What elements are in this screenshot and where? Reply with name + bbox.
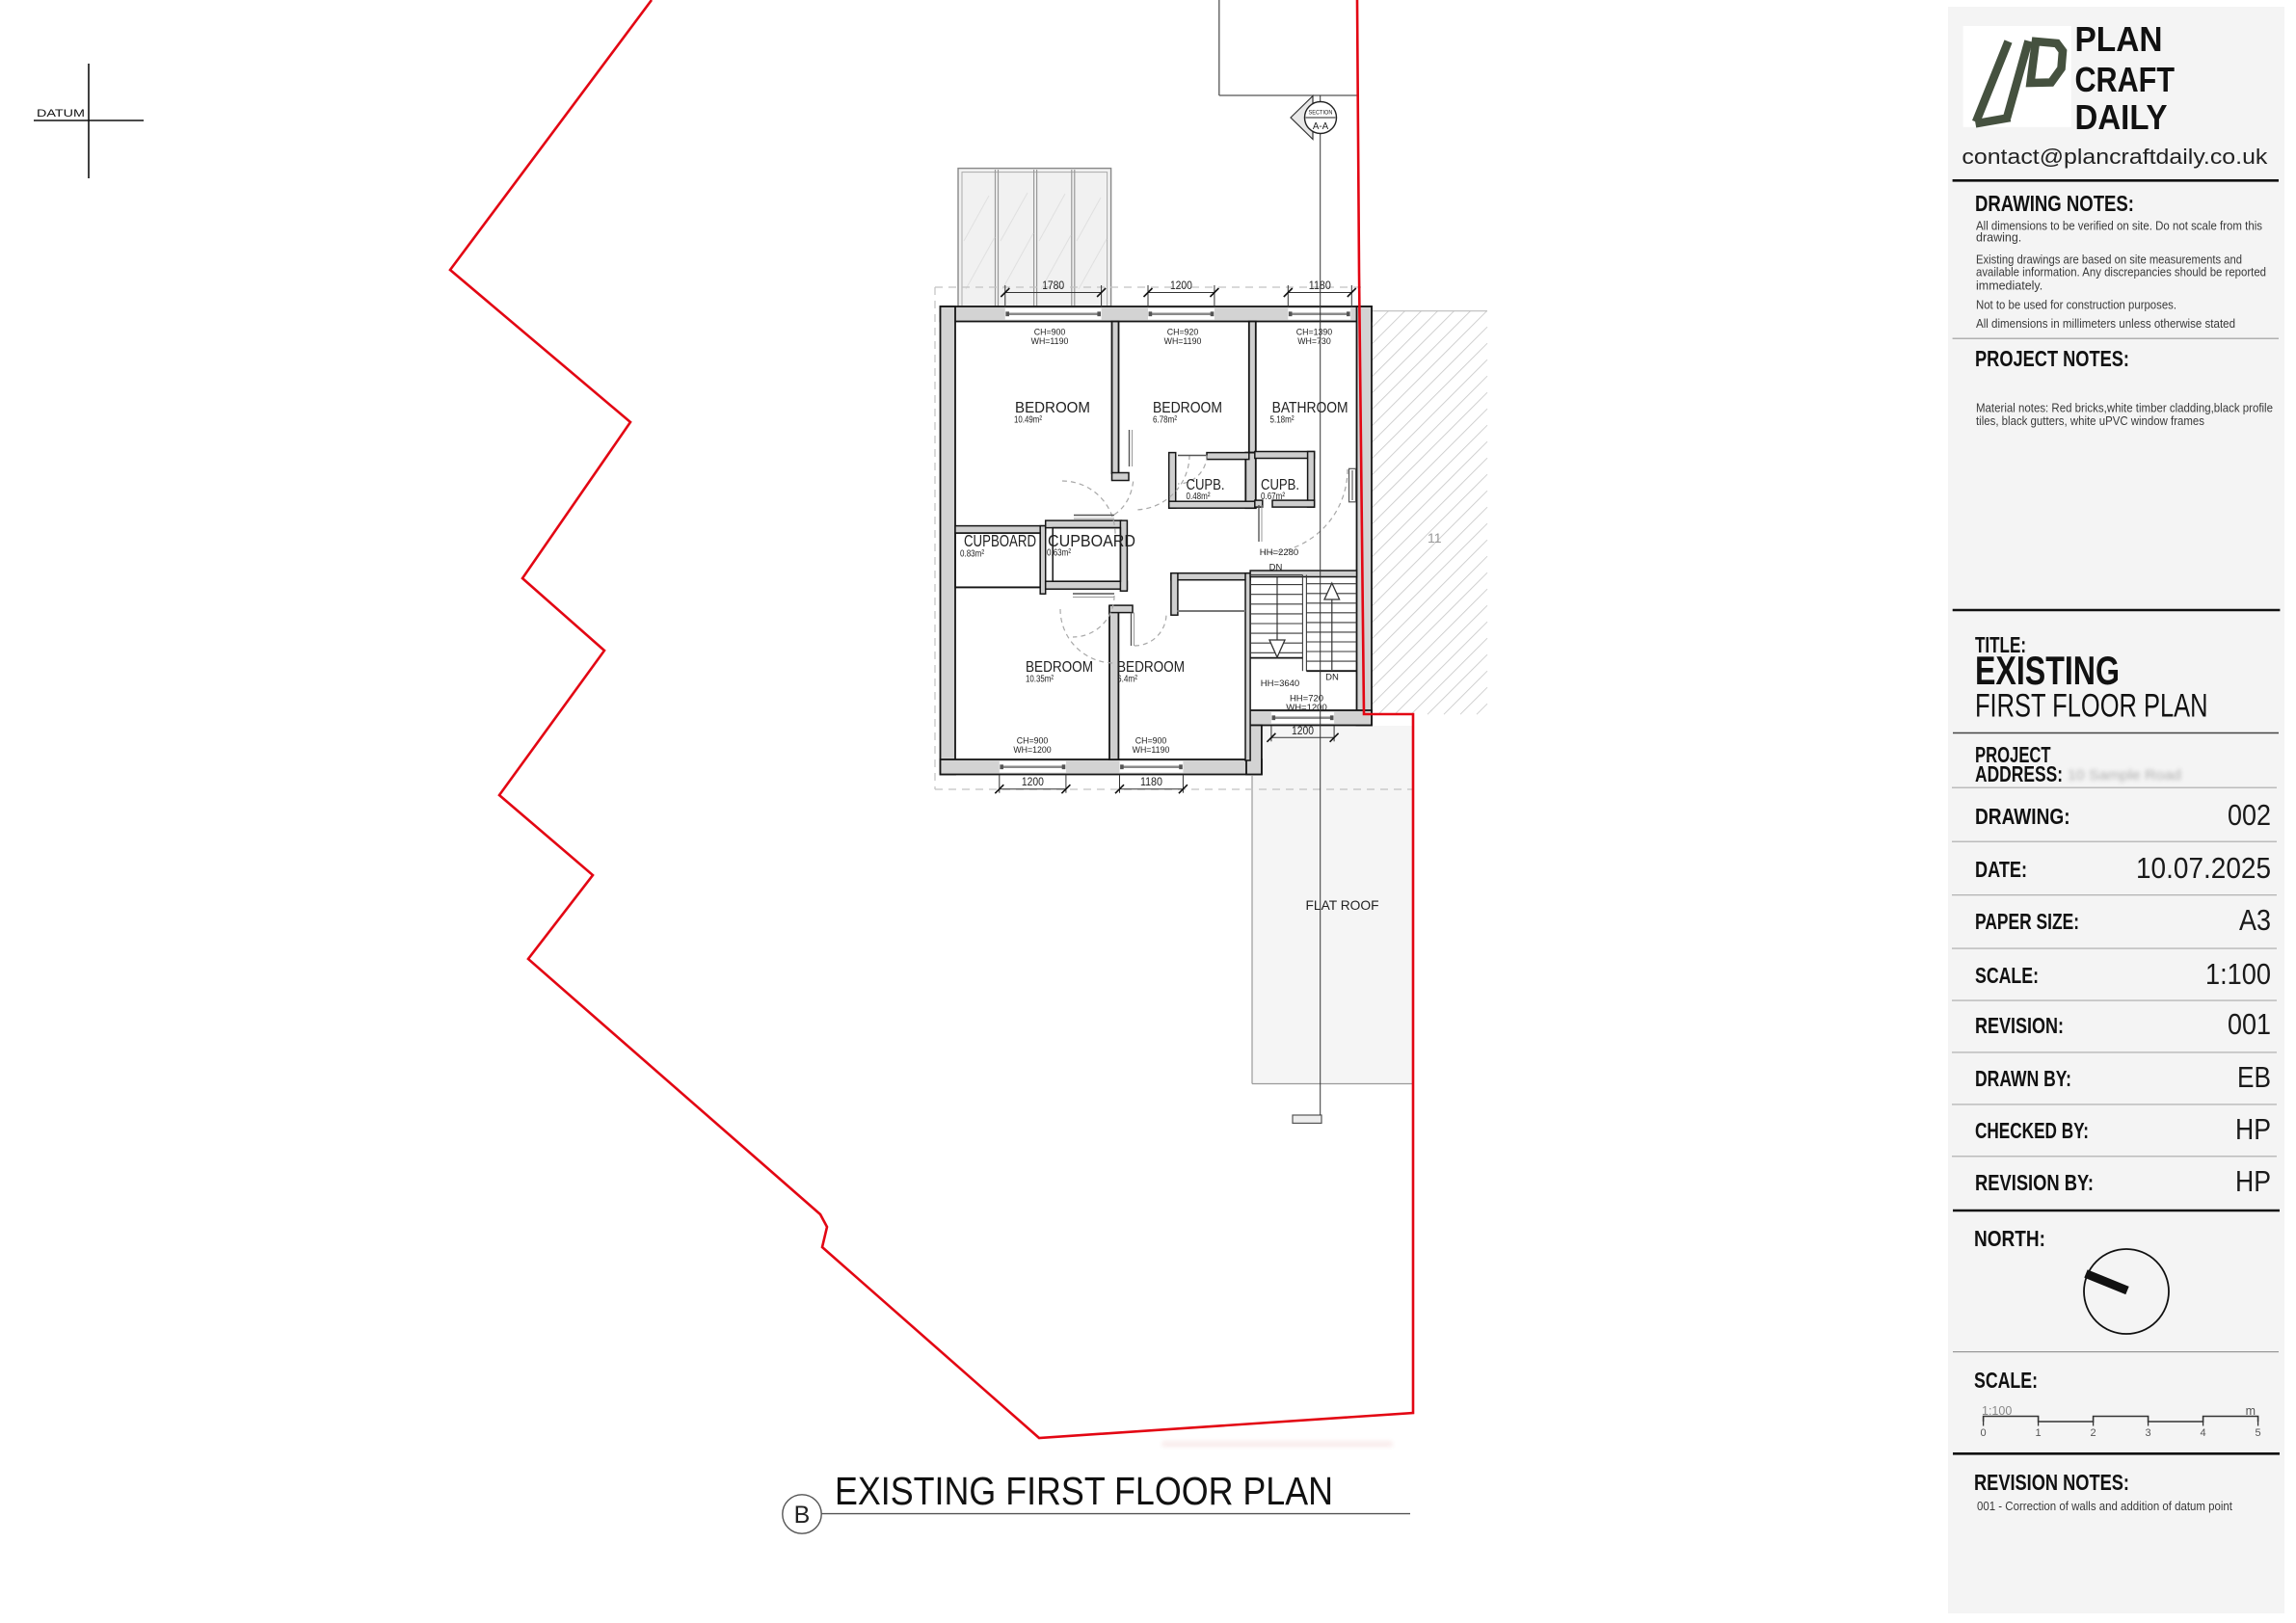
svg-text:Not to be used for constructio: Not to be used for construction purposes… bbox=[1976, 299, 2176, 312]
svg-text:DATE:: DATE: bbox=[1975, 857, 2027, 882]
svg-text:EXISTING: EXISTING bbox=[1975, 648, 2120, 693]
svg-text:FLAT ROOF: FLAT ROOF bbox=[1306, 897, 1379, 913]
svg-text:1:100: 1:100 bbox=[2205, 957, 2271, 991]
svg-text:0.67m²: 0.67m² bbox=[1261, 492, 1286, 502]
svg-text:WH=1200: WH=1200 bbox=[1013, 745, 1051, 755]
svg-text:5: 5 bbox=[2256, 1427, 2261, 1439]
svg-text:6.4m²: 6.4m² bbox=[1117, 675, 1138, 685]
svg-text:SECTION: SECTION bbox=[1309, 110, 1333, 117]
svg-text:A-A: A-A bbox=[1313, 121, 1329, 132]
svg-text:DATUM: DATUM bbox=[37, 108, 85, 120]
svg-text:B: B bbox=[794, 1502, 811, 1529]
svg-text:11: 11 bbox=[1428, 530, 1442, 545]
svg-text:EB: EB bbox=[2237, 1060, 2271, 1094]
svg-text:CH=920: CH=920 bbox=[1167, 328, 1199, 337]
svg-text:WH=1190: WH=1190 bbox=[1031, 336, 1069, 346]
svg-text:BEDROOM: BEDROOM bbox=[1117, 659, 1185, 676]
svg-text:A3: A3 bbox=[2239, 903, 2271, 937]
svg-text:DN: DN bbox=[1269, 563, 1283, 573]
svg-text:FIRST FLOOR PLAN: FIRST FLOOR PLAN bbox=[1975, 688, 2208, 725]
svg-text:DRAWN BY:: DRAWN BY: bbox=[1975, 1066, 2071, 1091]
svg-text:BEDROOM: BEDROOM bbox=[1015, 400, 1090, 416]
svg-text:CUPBOARD: CUPBOARD bbox=[964, 531, 1036, 550]
svg-text:All dimensions in millimeters: All dimensions in millimeters unless oth… bbox=[1976, 317, 2235, 331]
svg-text:immediately.: immediately. bbox=[1976, 279, 2042, 292]
svg-text:2: 2 bbox=[2091, 1427, 2096, 1439]
svg-text:10.35m²: 10.35m² bbox=[1026, 675, 1055, 685]
svg-text:1200: 1200 bbox=[1292, 726, 1314, 737]
svg-text:CH=900: CH=900 bbox=[1135, 736, 1167, 746]
svg-text:CH=1390: CH=1390 bbox=[1296, 328, 1333, 337]
svg-text:PROJECT NOTES:: PROJECT NOTES: bbox=[1975, 346, 2129, 371]
svg-text:EXISTING FIRST FLOOR PLAN: EXISTING FIRST FLOOR PLAN bbox=[835, 1469, 1333, 1513]
svg-text:1: 1 bbox=[2036, 1427, 2042, 1439]
svg-text:10.07.2025: 10.07.2025 bbox=[2136, 851, 2271, 885]
svg-text:001 - Correction of walls and: 001 - Correction of walls and addition o… bbox=[1977, 1500, 2232, 1513]
svg-text:0.63m²: 0.63m² bbox=[1047, 548, 1072, 559]
svg-text:1780: 1780 bbox=[1042, 280, 1064, 292]
svg-text:CH=900: CH=900 bbox=[1017, 736, 1049, 746]
svg-text:DAILY: DAILY bbox=[2075, 97, 2168, 137]
svg-text:001: 001 bbox=[2228, 1007, 2271, 1041]
svg-text:available information. Any dis: available information. Any discrepancies… bbox=[1976, 266, 2266, 279]
svg-text:NORTH:: NORTH: bbox=[1974, 1226, 2045, 1251]
svg-text:10 Sample Road: 10 Sample Road bbox=[2068, 767, 2181, 784]
svg-text:6.78m²: 6.78m² bbox=[1153, 415, 1178, 426]
svg-text:CRAFT: CRAFT bbox=[2075, 60, 2176, 99]
svg-text:0: 0 bbox=[1981, 1427, 1987, 1439]
svg-text:Existing drawings are based on: Existing drawings are based on site meas… bbox=[1976, 253, 2242, 266]
svg-text:CHECKED BY:: CHECKED BY: bbox=[1975, 1118, 2089, 1143]
svg-text:4: 4 bbox=[2201, 1427, 2206, 1439]
svg-text:REVISION BY:: REVISION BY: bbox=[1975, 1170, 2094, 1195]
svg-text:HP: HP bbox=[2235, 1164, 2271, 1198]
svg-text:HP: HP bbox=[2235, 1112, 2271, 1146]
svg-text:REVISION NOTES:: REVISION NOTES: bbox=[1974, 1470, 2129, 1495]
svg-text:BEDROOM: BEDROOM bbox=[1153, 400, 1222, 416]
svg-text:10.49m²: 10.49m² bbox=[1014, 415, 1043, 426]
svg-text:DRAWING:: DRAWING: bbox=[1975, 804, 2070, 829]
svg-text:1180: 1180 bbox=[1140, 777, 1162, 788]
svg-text:WH=1200: WH=1200 bbox=[1286, 703, 1327, 713]
svg-text:tiles, black gutters, white uP: tiles, black gutters, white uPVC window … bbox=[1976, 414, 2204, 428]
svg-text:BEDROOM: BEDROOM bbox=[1026, 659, 1093, 676]
svg-text:5.18m²: 5.18m² bbox=[1270, 415, 1295, 426]
svg-text:0.83m²: 0.83m² bbox=[960, 549, 985, 560]
svg-text:HH=3640: HH=3640 bbox=[1261, 678, 1299, 689]
svg-text:SCALE:: SCALE: bbox=[1975, 963, 2039, 988]
svg-text:drawing.: drawing. bbox=[1976, 231, 2021, 245]
svg-text:REVISION:: REVISION: bbox=[1975, 1013, 2064, 1038]
svg-text:WH=1190: WH=1190 bbox=[1133, 745, 1170, 755]
svg-text:WH=1190: WH=1190 bbox=[1164, 336, 1202, 346]
svg-text:PAPER SIZE:: PAPER SIZE: bbox=[1975, 909, 2079, 934]
svg-text:DN: DN bbox=[1325, 673, 1339, 683]
svg-text:ADDRESS:: ADDRESS: bbox=[1975, 761, 2063, 786]
svg-text:PLAN: PLAN bbox=[2075, 19, 2163, 59]
svg-text:SCALE:: SCALE: bbox=[1974, 1368, 2038, 1393]
svg-text:1200: 1200 bbox=[1022, 777, 1044, 788]
svg-text:WH=730: WH=730 bbox=[1297, 336, 1331, 346]
svg-text:Material notes: Red bricks,whi: Material notes: Red bricks,white timber … bbox=[1976, 401, 2273, 414]
svg-text:0.48m²: 0.48m² bbox=[1187, 492, 1212, 502]
svg-text:002: 002 bbox=[2228, 798, 2271, 832]
svg-text:DRAWING NOTES:: DRAWING NOTES: bbox=[1975, 191, 2134, 216]
svg-text:1200: 1200 bbox=[1170, 280, 1192, 292]
svg-text:CH=900: CH=900 bbox=[1034, 328, 1066, 337]
svg-text:HH=2280: HH=2280 bbox=[1260, 547, 1298, 558]
svg-text:BATHROOM: BATHROOM bbox=[1272, 400, 1348, 416]
svg-text:contact@plancraftdaily.co.uk: contact@plancraftdaily.co.uk bbox=[1962, 145, 2268, 169]
svg-text:3: 3 bbox=[2146, 1427, 2151, 1439]
